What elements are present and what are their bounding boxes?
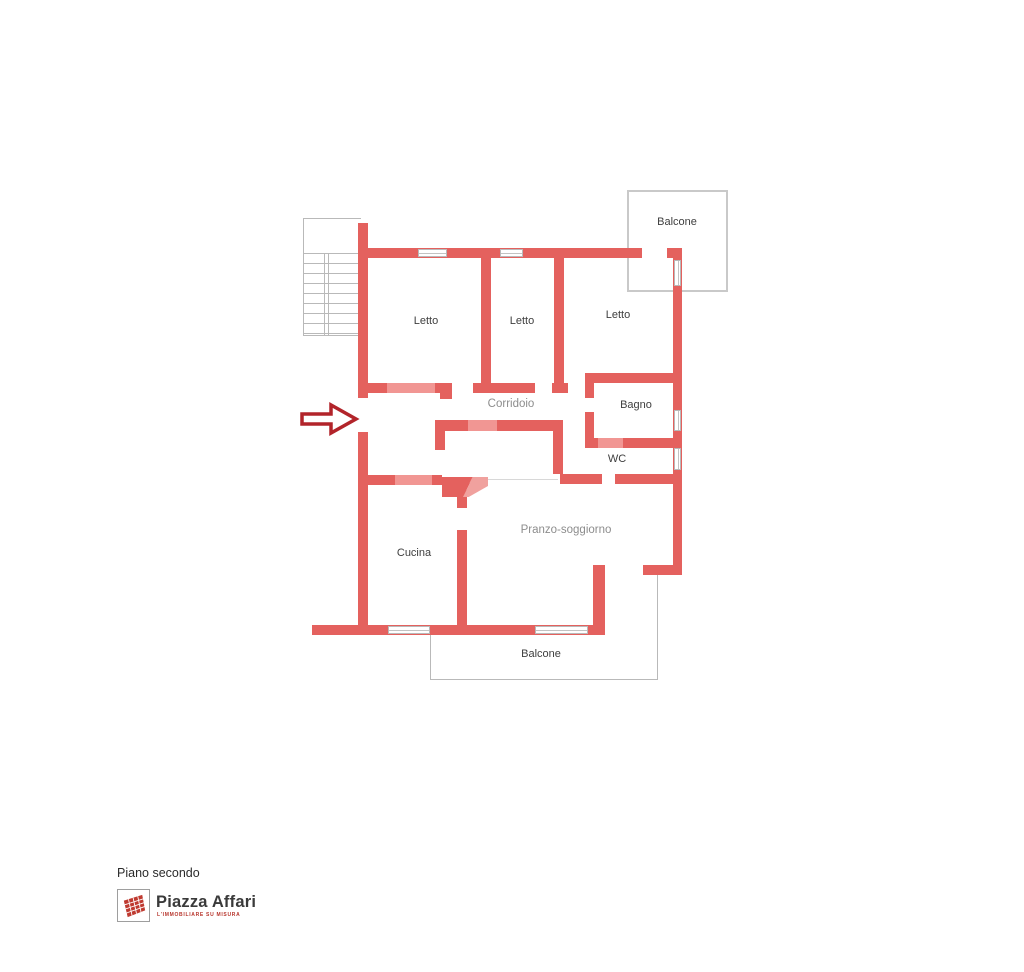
balcony-bottom-outline bbox=[430, 679, 658, 680]
window-symbol bbox=[674, 410, 681, 431]
room-label-balcony-top: Balcone bbox=[657, 216, 697, 228]
wall-step-horizontal bbox=[643, 565, 682, 575]
stair-step bbox=[303, 253, 360, 254]
wall-bedroom-divider-1 bbox=[481, 258, 491, 387]
stair-step bbox=[303, 303, 360, 304]
wall-bathroom-top bbox=[588, 373, 677, 383]
window-symbol bbox=[388, 626, 430, 634]
door-leaf-symbol bbox=[442, 477, 488, 497]
stair-edge bbox=[303, 335, 360, 336]
wall-corridor-stub bbox=[440, 393, 452, 399]
stair-step bbox=[303, 263, 360, 264]
wall-kitchen-divider bbox=[457, 530, 467, 625]
stair-edge bbox=[303, 218, 361, 219]
door-symbol bbox=[395, 475, 432, 485]
brand-name: Piazza Affari bbox=[156, 893, 256, 912]
balcony-bottom-outline bbox=[430, 635, 431, 680]
stair-step bbox=[303, 283, 360, 284]
brand-tagline: L'IMMOBILIARE SU MISURA bbox=[157, 912, 240, 918]
brand-logo bbox=[117, 889, 150, 922]
room-boundary-line bbox=[488, 479, 558, 480]
room-label-bedroom1: Letto bbox=[414, 315, 438, 327]
door-symbol bbox=[387, 383, 435, 393]
room-label-living-dining: Pranzo-soggiorno bbox=[521, 524, 612, 536]
wall-living-top bbox=[435, 420, 563, 431]
wall-wc-bottom-b bbox=[615, 474, 673, 484]
room-label-bedroom2: Letto bbox=[510, 315, 534, 327]
door-symbol bbox=[468, 420, 497, 431]
room-label-balcony-bottom: Balcone bbox=[521, 648, 561, 660]
room-label-kitchen: Cucina bbox=[397, 547, 431, 559]
stair-edge bbox=[303, 218, 304, 335]
room-label-corridor: Corridoio bbox=[488, 398, 535, 410]
wall-corridor-c bbox=[552, 383, 568, 393]
stair-step bbox=[303, 333, 360, 334]
wall-kitchen-stub bbox=[457, 497, 467, 508]
stair-step bbox=[303, 323, 360, 324]
window-symbol bbox=[674, 260, 681, 286]
stair-step bbox=[303, 313, 360, 314]
window-symbol bbox=[418, 249, 447, 257]
stair-step bbox=[303, 293, 360, 294]
stair-divider bbox=[324, 253, 325, 335]
room-label-wc: WC bbox=[608, 453, 626, 465]
wall-left-lower bbox=[358, 432, 368, 630]
wall-living-stub-left bbox=[435, 431, 445, 450]
balcony-bottom-outline bbox=[657, 575, 658, 680]
entrance-arrow-icon bbox=[298, 400, 360, 438]
wall-step-vertical bbox=[593, 565, 605, 635]
wall-corridor-b bbox=[473, 383, 535, 393]
room-label-bathroom: Bagno bbox=[620, 399, 652, 411]
wall-living-right bbox=[553, 431, 563, 474]
window-symbol bbox=[500, 249, 523, 257]
window-symbol bbox=[674, 448, 681, 470]
stair-divider bbox=[328, 253, 329, 335]
room-label-bedroom3: Letto bbox=[606, 309, 630, 321]
door-symbol bbox=[598, 438, 623, 448]
wall-wc-bottom-a bbox=[560, 474, 602, 484]
window-symbol bbox=[535, 626, 588, 634]
wall-bedroom-divider-2 bbox=[554, 258, 564, 387]
floor-plan-page: Letto Letto Letto Corridoio Bagno WC Pra… bbox=[0, 0, 1024, 972]
stair-step bbox=[303, 273, 360, 274]
brand-logo-icon bbox=[118, 890, 149, 921]
wall-bathroom-left-a bbox=[585, 373, 594, 398]
floor-label: Piano secondo bbox=[117, 866, 200, 880]
